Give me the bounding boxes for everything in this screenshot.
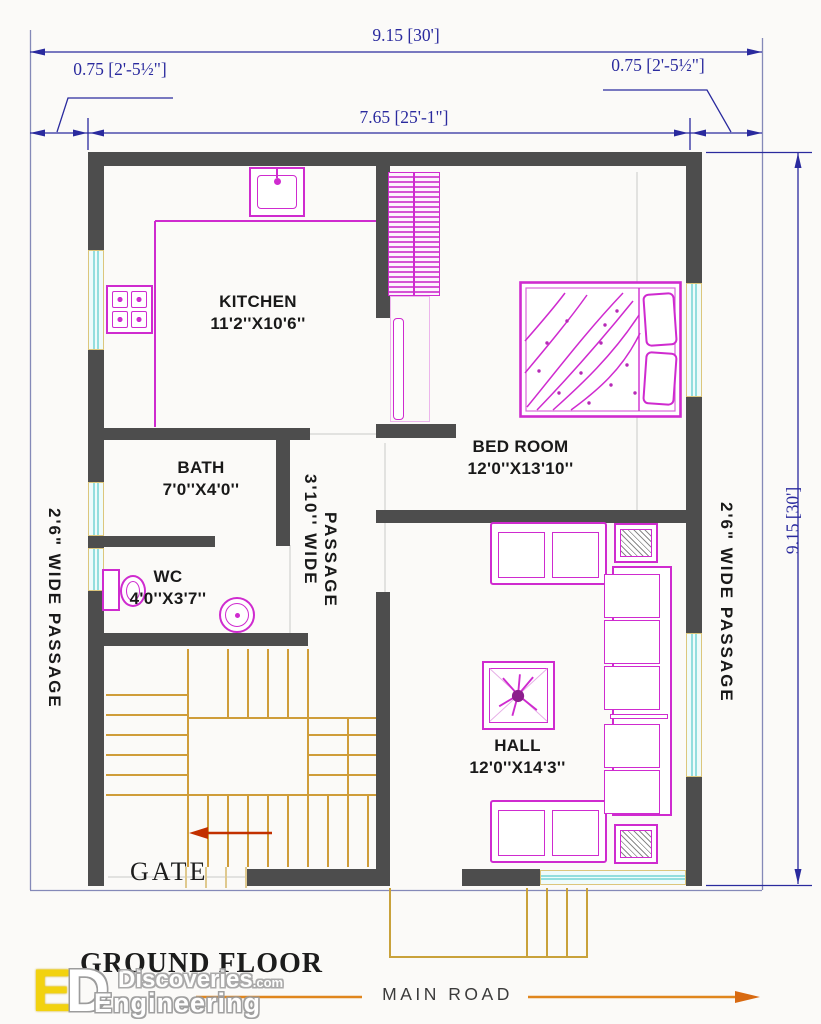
- bed-art: [519, 281, 682, 418]
- window-bath: [88, 482, 104, 536]
- wall-bottom-right: [462, 869, 540, 886]
- passage-right-label: 2'6" WIDE PASSAGE: [716, 502, 736, 703]
- sofa-cushion: [604, 770, 660, 814]
- watermark-discoveries: Discoveries.com: [118, 966, 283, 994]
- window-bedroom: [686, 283, 702, 397]
- wall-bath-wc-divider: [88, 536, 215, 547]
- bath-name: BATH: [127, 457, 275, 479]
- stove-burner: [112, 311, 128, 328]
- sofa-cushion: [604, 724, 660, 768]
- kitchen-sink: [249, 167, 305, 217]
- passage-center-line2: PASSAGE: [320, 474, 340, 608]
- window-glass: [93, 251, 99, 349]
- dim-overall-depth: 9.15 [30']: [783, 456, 804, 586]
- sofa-seat: [552, 532, 599, 578]
- sink-faucet-icon: [274, 178, 281, 185]
- wc-name: WC: [112, 566, 224, 588]
- plant-icon: [484, 663, 553, 728]
- hall-size: 12'0''X14'3'': [425, 757, 610, 779]
- wash-basin: [219, 597, 255, 633]
- passage-left-label: 2'6" WIDE PASSAGE: [44, 508, 64, 709]
- wall-hall-left: [376, 592, 390, 886]
- bedroom-label: BED ROOM 12'0''X13'10'': [423, 436, 618, 481]
- bedroom-name: BED ROOM: [423, 436, 618, 458]
- staircase: [106, 649, 388, 867]
- kitchen-size: 11'2''X10'6'': [173, 313, 343, 335]
- passage-center-label: 3'10'' WIDE PASSAGE: [300, 474, 340, 608]
- center-table: [482, 661, 555, 730]
- entrance-porch: [390, 888, 587, 957]
- sofa-seat: [498, 532, 545, 578]
- passage-center-line1: 3'10'' WIDE: [300, 474, 320, 608]
- bedroom-door-leaf: [393, 318, 404, 420]
- wc-size: 4'0''X3'7'': [112, 588, 224, 610]
- sofa-long-right: [604, 566, 674, 818]
- side-table-bottom: [614, 824, 658, 864]
- bath-label: BATH 7'0''X4'0'': [127, 457, 275, 502]
- hall-name: HALL: [425, 735, 610, 757]
- side-table-top: [614, 523, 658, 563]
- floor-plan: KITCHEN 11'2''X10'6'' BATH 7'0''X4'0'' W…: [0, 0, 821, 1024]
- window-glass: [93, 549, 99, 590]
- dim-left-offset: 0.75 [2'-5½"]: [56, 59, 184, 80]
- window-glass: [691, 284, 697, 396]
- bedroom-size: 12'0''X13'10'': [423, 458, 618, 480]
- bedroom-wardrobe: [388, 172, 440, 296]
- sofa-two-seater-top: [490, 522, 607, 585]
- watermark-logo: E D Engineering Discoveries.com: [28, 952, 348, 1024]
- stove-burner: [131, 291, 147, 308]
- window-glass: [93, 483, 99, 535]
- kitchen-stove: [106, 285, 153, 334]
- sofa-seat: [552, 810, 599, 856]
- gate-label: GATE: [130, 857, 208, 887]
- sofa-cushion: [604, 574, 660, 618]
- sofa-two-seater-bottom: [490, 800, 607, 863]
- kitchen-name: KITCHEN: [173, 291, 343, 313]
- sink-faucet-pipe: [276, 168, 278, 178]
- window-kitchen: [88, 250, 104, 350]
- watermark-site-name: Discoveries: [118, 966, 253, 993]
- main-road-label: MAIN ROAD: [380, 984, 515, 1005]
- wc-label: WC 4'0''X3'7'': [112, 566, 224, 611]
- bath-size: 7'0''X4'0'': [127, 479, 275, 501]
- wall-stair-top: [104, 633, 308, 646]
- sofa-cushion: [604, 620, 660, 664]
- stove-burner: [112, 291, 128, 308]
- kitchen-label: KITCHEN 11'2''X10'6'': [173, 291, 343, 336]
- dim-inner-width: 7.65 [25'-1"]: [334, 107, 474, 128]
- window-glass: [691, 634, 697, 776]
- double-bed: [519, 281, 682, 418]
- sofa-cushion: [604, 666, 660, 710]
- stair-direction-arrow: [189, 827, 272, 839]
- window-hall-right: [686, 633, 702, 777]
- window-hall-bottom: [540, 870, 686, 885]
- dim-overall-width: 9.15 [30']: [336, 25, 476, 46]
- dim-right-offset: 0.75 [2'-5½"]: [594, 55, 722, 76]
- hall-label: HALL 12'0''X14'3'': [425, 735, 610, 780]
- wall-bath-right: [276, 428, 290, 546]
- sofa-ledge: [610, 714, 668, 719]
- sofa-seat: [498, 810, 545, 856]
- stove-burner: [131, 311, 147, 328]
- wall-top: [88, 152, 702, 166]
- window-glass: [541, 875, 685, 880]
- watermark-site-tld: .com: [253, 975, 283, 990]
- wall-bottom-left: [247, 869, 390, 886]
